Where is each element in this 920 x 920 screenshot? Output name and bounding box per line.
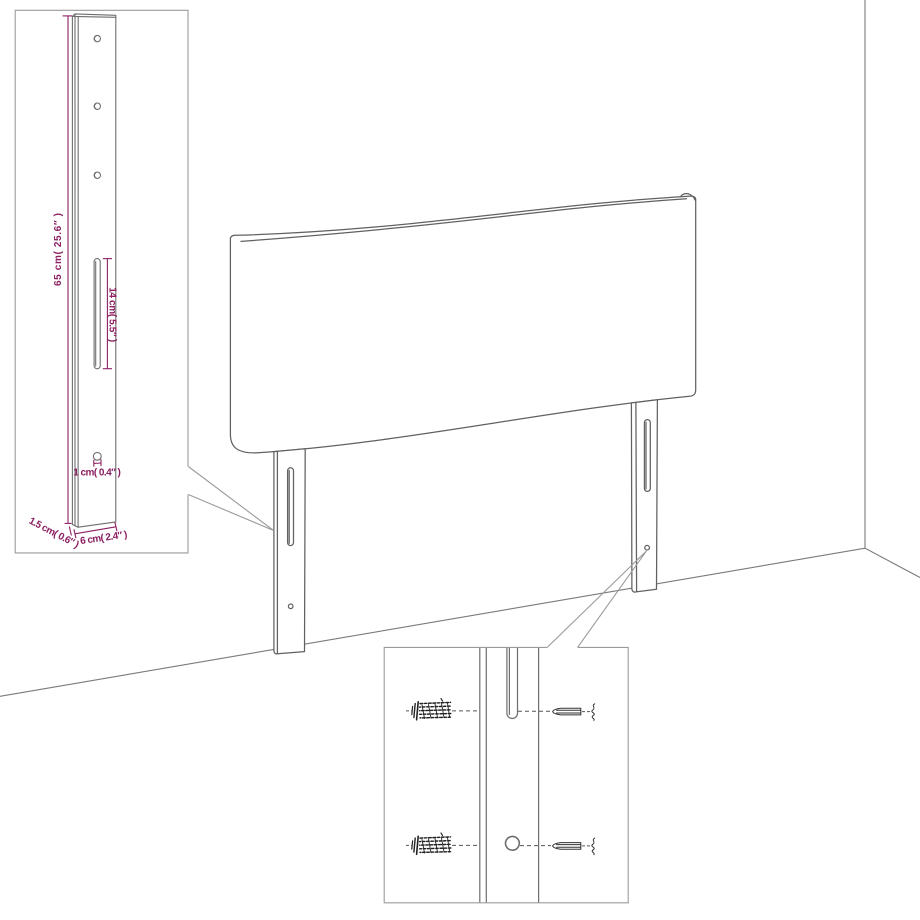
svg-text:65 cm( 25.6″ ): 65 cm( 25.6″ ): [53, 213, 64, 286]
svg-text:1 cm( 0.4″ ): 1 cm( 0.4″ ): [73, 468, 121, 479]
svg-text:14 cm( 5.5″ ): 14 cm( 5.5″ ): [107, 287, 118, 342]
